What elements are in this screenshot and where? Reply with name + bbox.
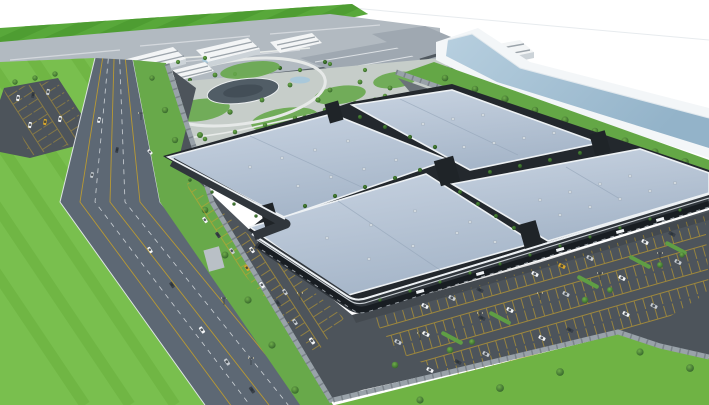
- tree: [52, 71, 57, 76]
- tree: [323, 60, 327, 64]
- tree: [12, 79, 17, 84]
- render-canvas: [0, 0, 709, 405]
- aerial-render-industrial-park: [0, 0, 709, 405]
- campus-pond-2: [290, 77, 310, 84]
- tree: [32, 75, 37, 80]
